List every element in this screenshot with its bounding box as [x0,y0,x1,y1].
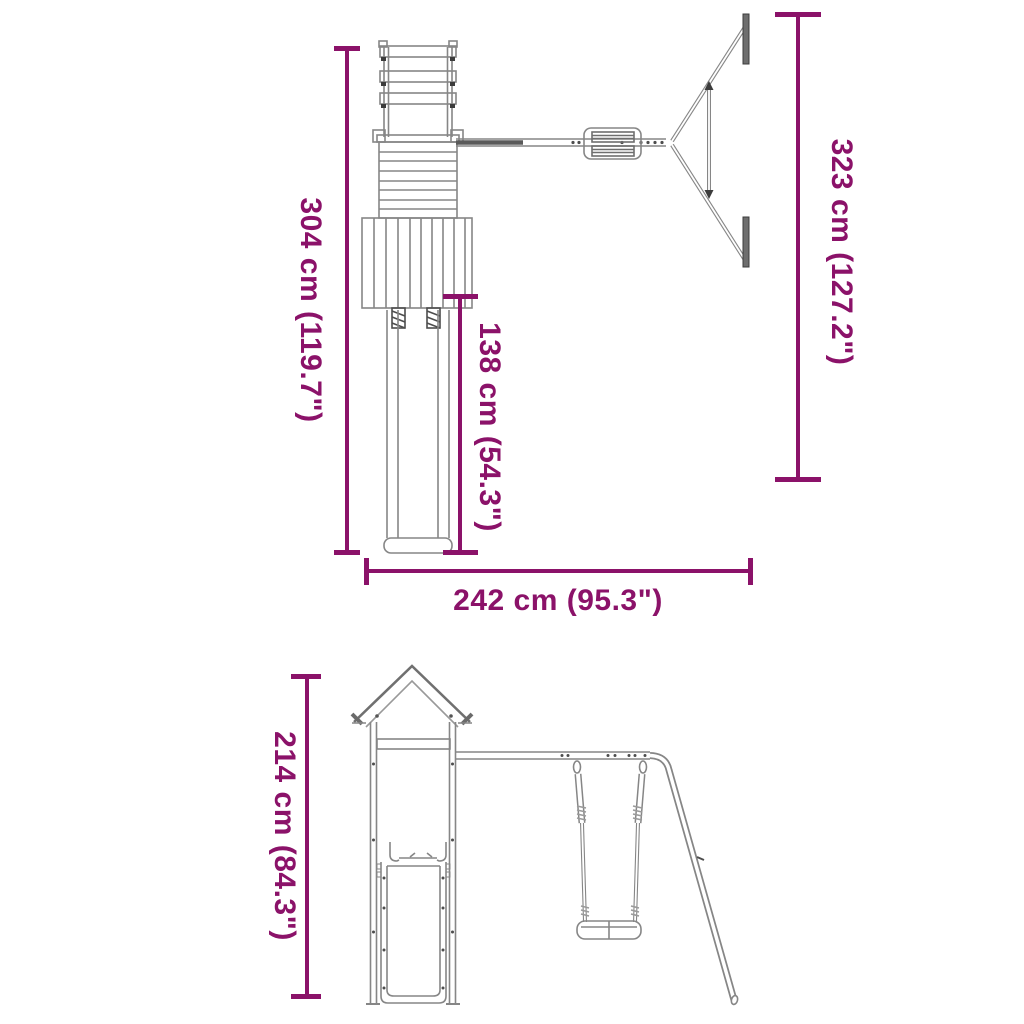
a-frame-leg-front-view [650,756,739,1006]
dimension-swing-frame-depth-label: 323 cm (127.2") [824,139,858,366]
dimension-slide-length-label: 138 cm (54.3") [472,322,506,532]
dimension-width-total-label: 242 cm (95.3") [453,584,663,618]
dimension-height-total-label: 214 cm (84.3") [267,731,301,941]
diagram-canvas: 304 cm (119.7") 138 cm (54.3") 323 cm (1… [0,0,1024,1024]
dimension-cap [443,294,478,299]
dimension-cap [334,550,360,555]
anchor-posts-top-view [392,308,440,328]
top-view-drawing [362,14,749,553]
playset-line-drawing [0,0,1024,1024]
dimension-cap [748,558,753,585]
dimension-depth-total-label: 304 cm (119.7") [293,197,327,422]
a-frame-top-view [672,14,749,267]
dimension-line [366,569,751,573]
dimension-line [345,48,349,554]
dimension-cap [775,12,821,17]
dimension-cap [364,558,369,585]
ladder-top-view [379,41,457,137]
slide-top-view [384,310,452,553]
dimension-cap [775,477,821,482]
dimension-cap [443,550,478,555]
dimension-line [796,14,800,481]
swing-front-view [574,761,647,939]
climbing-wall-top-view [373,130,463,218]
dimension-cap [291,674,321,679]
swing-beam-front-view [456,752,651,759]
dimension-line [305,676,309,998]
dimension-cap [291,994,321,999]
dimension-line [458,296,462,554]
swing-seat-top-view [584,128,641,159]
front-view-drawing [352,666,739,1005]
slide-front-view [377,842,450,1003]
dimension-cap [334,46,360,51]
tower-roof [352,666,472,727]
